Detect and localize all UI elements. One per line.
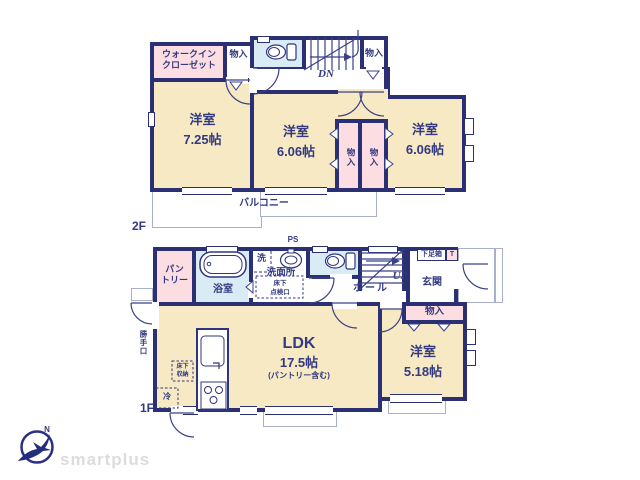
f2-stairs-arrow-line [310, 30, 358, 57]
plan-overlay-graphics [0, 0, 640, 480]
washing-machine-outline [252, 250, 271, 272]
f1-stairs-diagonal [359, 249, 404, 290]
f1-backdoor-arc [131, 303, 152, 324]
kitchen-counter-icon [197, 329, 228, 410]
f2-room-middle-door-arc [338, 92, 362, 116]
brand-logo-text: smartplus [60, 450, 150, 470]
f1-ldk-door-arc [332, 303, 357, 328]
f1-washroom-door-arc [309, 278, 334, 303]
toilet-1f-icon [346, 253, 355, 269]
f1-entrance-door-arc [463, 264, 488, 289]
underfloor-access-outline [256, 276, 303, 298]
floorplan-canvas: ウォークイン クローゼット 物入 物入 DN 洋室7.25帖 洋室6.06帖 洋… [0, 0, 640, 480]
f2-closet-top-left-door-mark [230, 82, 242, 90]
fridge-outline [156, 388, 178, 408]
f2-closet-top-right-door-mark [367, 71, 379, 79]
f1-ldk-sw-door-arc [170, 413, 194, 437]
underfloor-storage-outline [172, 361, 193, 381]
washbasin-icon [281, 252, 302, 268]
f1-stairs-arrowhead [392, 257, 400, 265]
f1-closet-door-marks [408, 324, 420, 331]
f1-stairs-treads [360, 253, 404, 283]
f2-stairs-arrowhead [344, 53, 352, 61]
compass-icon [18, 432, 53, 463]
f2-room-west-door-arc [253, 68, 279, 94]
f1-bedroom-door-arc [379, 309, 402, 332]
f2-closet-right-door-marks [385, 128, 393, 140]
f2-closet-left-door-marks [330, 128, 338, 140]
f1-bath-door-mark [246, 281, 253, 293]
toilet-2f-icon [287, 44, 296, 60]
f2-stairs-diagonal [304, 38, 357, 70]
f2-room-east-door-arc [360, 92, 384, 116]
